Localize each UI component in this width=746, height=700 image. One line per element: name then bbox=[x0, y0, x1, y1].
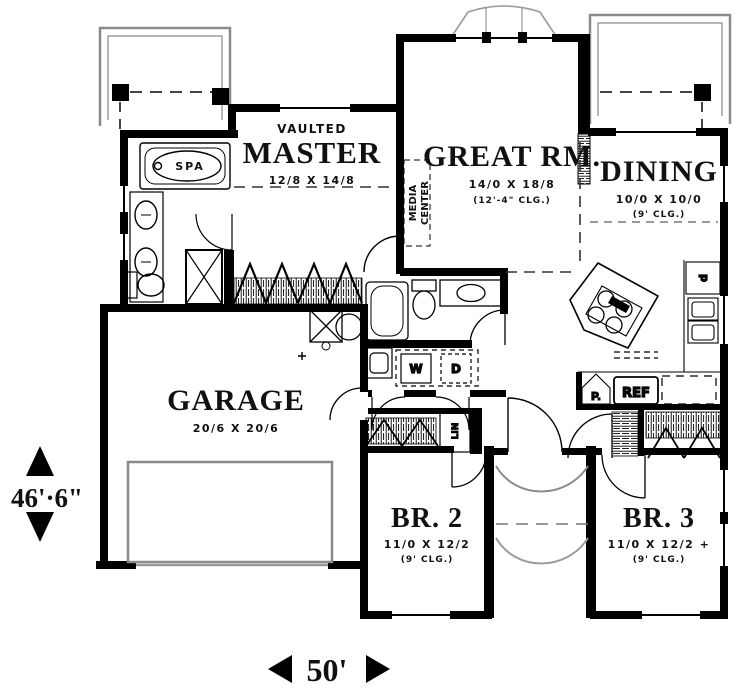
vanity-double-sink bbox=[130, 192, 163, 302]
spa-label: SPA bbox=[175, 160, 205, 173]
hall-closet-hatch bbox=[612, 412, 638, 456]
garage-dims: 20/6 X 20/6 bbox=[193, 422, 280, 435]
great-room-dims: 14/0 X 18/8 bbox=[469, 178, 556, 191]
bay-window-outline bbox=[452, 6, 556, 36]
laundry-counter bbox=[396, 350, 478, 386]
arrow-right-icon bbox=[366, 655, 390, 683]
dining-dims: 10/0 X 10/0 bbox=[616, 193, 703, 206]
vanity-sink bbox=[440, 280, 502, 306]
garage-entry-door bbox=[330, 388, 362, 420]
master-tag: VAULTED bbox=[277, 122, 347, 136]
pantry-label: P. bbox=[591, 390, 601, 403]
great-room-name: GREAT RM. bbox=[423, 140, 601, 173]
master-door-arc bbox=[364, 236, 400, 272]
dryer-label: D bbox=[451, 362, 461, 376]
patio-post bbox=[694, 84, 711, 101]
water-heater bbox=[336, 314, 362, 340]
washer-label: W bbox=[409, 362, 422, 376]
dining-name: DINING bbox=[600, 155, 718, 188]
arrow-left-icon bbox=[268, 655, 292, 683]
kitchen-island bbox=[570, 263, 658, 348]
linen-label: LIN bbox=[451, 423, 461, 440]
refrigerator: REF bbox=[614, 377, 658, 404]
bath-door-arc bbox=[196, 214, 232, 250]
toilet bbox=[412, 280, 436, 319]
master-name: MASTER bbox=[243, 135, 382, 170]
br2-door-arc bbox=[452, 453, 486, 487]
br2-name: BR. 2 bbox=[391, 503, 463, 534]
furnace bbox=[310, 310, 342, 350]
shelf-dashes bbox=[614, 352, 658, 358]
dishwasher-label: d bbox=[697, 274, 710, 282]
porch-step bbox=[496, 538, 588, 564]
width-dimension-label: 50' bbox=[307, 652, 348, 688]
patio-post bbox=[212, 88, 229, 105]
dining-ceiling: (9' CLG.) bbox=[633, 210, 686, 220]
media-center-label-1: MEDIA bbox=[408, 184, 419, 221]
kitchen-sink bbox=[688, 298, 718, 343]
arrow-up-icon bbox=[26, 446, 54, 476]
br3-ceiling: (9' CLG.) bbox=[633, 555, 686, 565]
width-dimension: 50' bbox=[268, 652, 390, 688]
bathtub bbox=[366, 282, 408, 340]
br3-name: BR. 3 bbox=[623, 503, 695, 534]
height-dimension-label: 46'·6" bbox=[11, 483, 83, 513]
br3-dims: 11/0 X 12/2 + bbox=[608, 538, 711, 551]
media-center-label-2: CENTER bbox=[420, 181, 431, 225]
master-dims: 12/8 X 14/8 bbox=[269, 174, 356, 187]
floor-plan: MEDIA CENTER W D bbox=[0, 0, 746, 700]
pantry: P. bbox=[582, 374, 610, 404]
porch-step bbox=[496, 466, 588, 492]
refrigerator-label: REF bbox=[622, 386, 650, 401]
patio-top-right bbox=[590, 15, 730, 128]
height-dimension: 46'·6" bbox=[11, 446, 83, 542]
garage bbox=[128, 310, 362, 565]
shower bbox=[186, 250, 222, 304]
bath-door-arc bbox=[470, 310, 505, 345]
br2-dims: 11/0 X 12/2 bbox=[384, 538, 471, 551]
br2-ceiling: (9' CLG.) bbox=[401, 555, 454, 565]
dishwasher: d bbox=[686, 262, 720, 294]
master-closet bbox=[234, 264, 362, 304]
hall-bath bbox=[366, 280, 505, 345]
floor-plan-drawing: MEDIA CENTER W D bbox=[0, 0, 746, 700]
plus-mark bbox=[298, 352, 306, 360]
arrow-down-icon bbox=[26, 512, 54, 542]
br3-closet-hatch bbox=[646, 412, 720, 438]
kitchen: d P. REF bbox=[570, 260, 720, 404]
counter-dashed bbox=[662, 376, 716, 404]
great-room-ceiling: (12'-4" CLG.) bbox=[473, 196, 550, 206]
entry bbox=[496, 398, 588, 564]
utility-sink bbox=[366, 348, 392, 378]
br3-door-arc bbox=[602, 455, 645, 498]
patio-post bbox=[112, 84, 129, 101]
garage-name: GARAGE bbox=[167, 384, 305, 417]
toilet bbox=[126, 272, 164, 298]
garage-door-area bbox=[128, 462, 332, 562]
patio-top-left bbox=[100, 28, 230, 132]
front-door-arc bbox=[508, 398, 562, 452]
